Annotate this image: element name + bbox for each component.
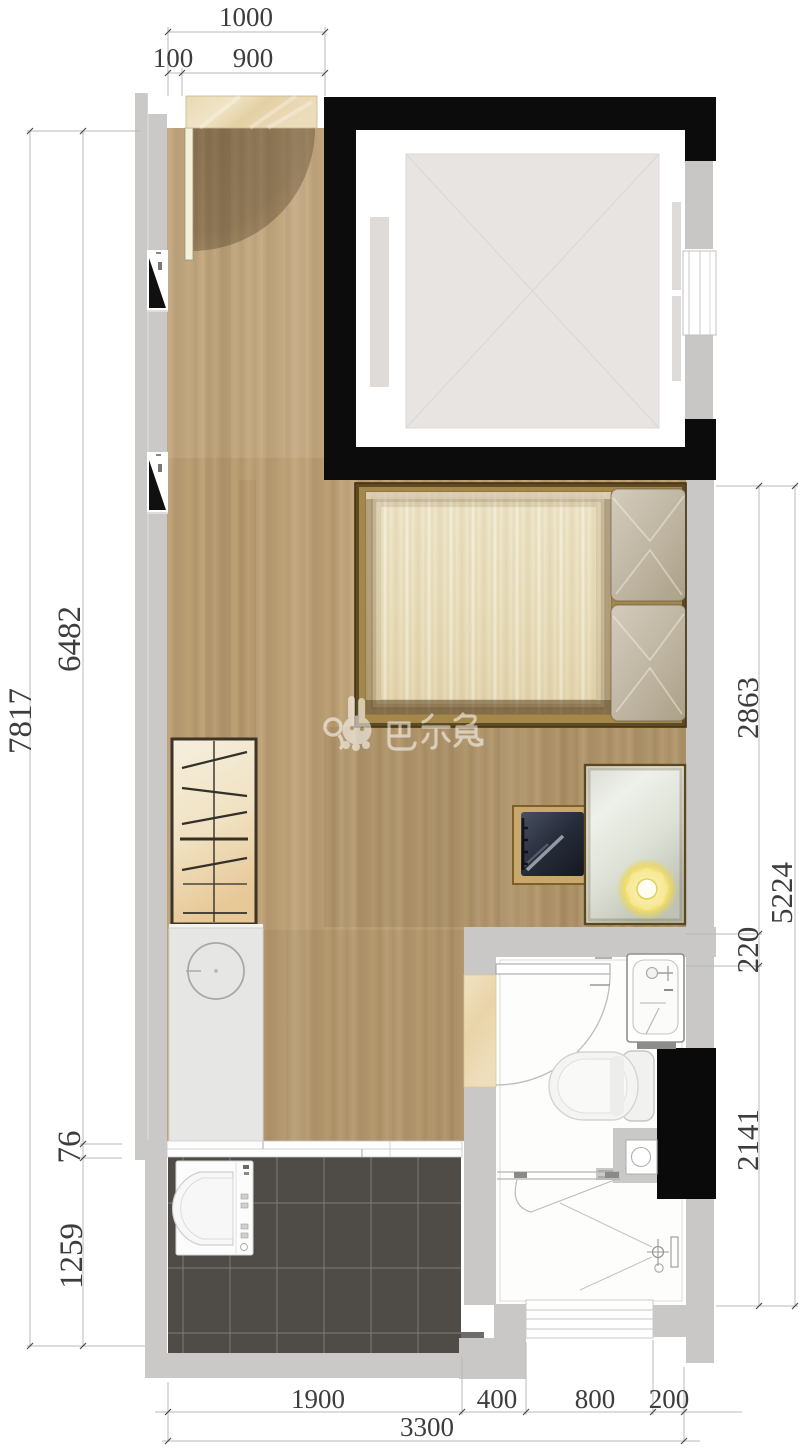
svg-text:6482: 6482 [52,606,88,672]
svg-text:220: 220 [730,927,765,974]
svg-text:200: 200 [649,1384,690,1414]
svg-text:2863: 2863 [730,677,765,739]
svg-text:76: 76 [52,1131,88,1164]
svg-text:2141: 2141 [730,1109,765,1171]
svg-text:400: 400 [477,1384,518,1414]
svg-text:1259: 1259 [54,1223,90,1289]
svg-text:7817: 7817 [3,688,39,754]
svg-text:900: 900 [233,43,274,73]
svg-text:1000: 1000 [219,2,273,32]
svg-text:800: 800 [575,1384,616,1414]
svg-text:3300: 3300 [400,1412,454,1442]
svg-text:5224: 5224 [764,862,799,925]
svg-text:1900: 1900 [291,1384,345,1414]
svg-text:100: 100 [153,43,194,73]
